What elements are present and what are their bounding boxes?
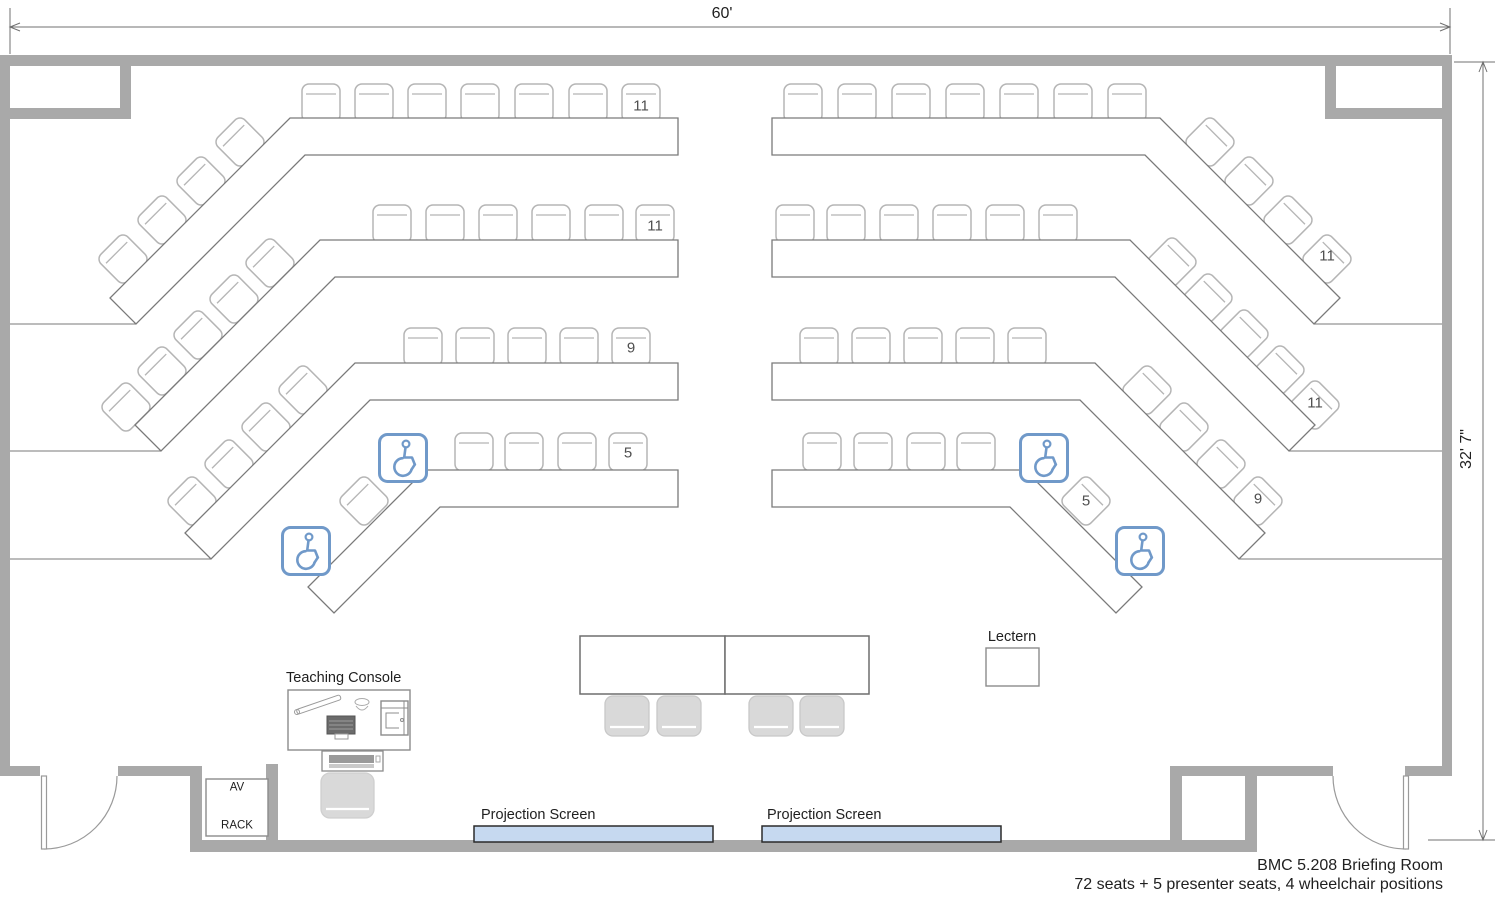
audience-chair <box>408 84 446 122</box>
keyboard-tray-icon <box>322 751 383 771</box>
seat-count-label: 11 <box>1319 249 1335 266</box>
room-subtitle: 72 seats + 5 presenter seats, 4 wheelcha… <box>1074 876 1443 894</box>
audience-chair <box>461 84 499 122</box>
teaching-console <box>288 690 410 818</box>
room-title: BMC 5.208 Briefing Room <box>1257 857 1443 875</box>
audience-chair <box>946 84 984 122</box>
audience-chair <box>957 433 995 471</box>
audience-chair <box>404 328 442 366</box>
audience-chair <box>1039 205 1077 243</box>
lectern-box <box>986 648 1039 686</box>
seating-table <box>185 363 678 559</box>
wheelchair-icon <box>1117 528 1164 575</box>
seat-count-label: 11 <box>633 99 649 116</box>
projection-screen-left-label: Projection Screen <box>481 807 595 823</box>
seat-count-label: 11 <box>1307 396 1323 413</box>
projection-screen-right <box>762 826 1001 842</box>
audience-chair <box>456 328 494 366</box>
av-rack-label-line2: RACK <box>221 820 253 833</box>
audience-chair <box>515 84 553 122</box>
audience-chair <box>560 328 598 366</box>
console-rack-icon <box>381 701 408 735</box>
audience-chair <box>479 205 517 243</box>
floorplan-page: 60' 32' 7" 11 11 9 5 11 11 9 5 Teaching … <box>0 0 1500 902</box>
seat-count-label: 5 <box>624 446 632 463</box>
audience-chair <box>558 433 596 471</box>
seat-count-label: 5 <box>1082 494 1090 511</box>
audience-chair <box>827 205 865 243</box>
presenter-chair <box>800 696 844 736</box>
audience-chair <box>1108 84 1146 122</box>
audience-chair <box>852 328 890 366</box>
room-depth-dimension-label: 32' 7" <box>1458 429 1476 469</box>
audience-chair <box>373 205 411 243</box>
audience-chair <box>838 84 876 122</box>
audience-chair <box>904 328 942 366</box>
wheelchair-icon <box>283 528 330 575</box>
audience-chair <box>784 84 822 122</box>
projection-screen-left <box>474 826 713 842</box>
teaching-console-label: Teaching Console <box>286 670 401 686</box>
audience-chair <box>892 84 930 122</box>
audience-chair <box>302 84 340 122</box>
audience-chair <box>505 433 543 471</box>
audience-chair <box>803 433 841 471</box>
audience-chair <box>956 328 994 366</box>
audience-chair <box>455 433 493 471</box>
wheelchair-icon <box>380 435 427 482</box>
audience-chair <box>508 328 546 366</box>
seat-count-label: 9 <box>1254 492 1262 509</box>
audience-chair <box>532 205 570 243</box>
presenter-chair <box>657 696 701 736</box>
audience-chair <box>569 84 607 122</box>
presenter-chair <box>605 696 649 736</box>
audience-chair <box>1008 328 1046 366</box>
console-chair <box>321 773 374 818</box>
seat-count-label: 11 <box>647 219 663 236</box>
presenter-table <box>580 636 869 694</box>
audience-chair <box>1000 84 1038 122</box>
audience-chair <box>1054 84 1092 122</box>
wheelchair-icon <box>1021 435 1068 482</box>
seating-table <box>772 363 1265 559</box>
audience-chair <box>907 433 945 471</box>
lectern-label: Lectern <box>988 629 1036 645</box>
projection-screen-right-label: Projection Screen <box>767 807 881 823</box>
audience-chair <box>933 205 971 243</box>
entry-door-left <box>42 776 118 849</box>
entry-door-right <box>1333 776 1409 849</box>
audience-chair <box>355 84 393 122</box>
audience-chair <box>800 328 838 366</box>
audience-chair <box>776 205 814 243</box>
seat-count-label: 9 <box>627 341 635 358</box>
av-rack-label-line1: AV <box>221 781 253 794</box>
room-width-dimension-label: 60' <box>712 5 733 23</box>
audience-chair <box>426 205 464 243</box>
seating-tables <box>10 118 1442 613</box>
audience-chair <box>585 205 623 243</box>
av-rack-label: AV RACK <box>221 756 253 859</box>
audience-chair <box>880 205 918 243</box>
audience-chair <box>986 205 1024 243</box>
presenter-chair <box>749 696 793 736</box>
audience-chair <box>854 433 892 471</box>
